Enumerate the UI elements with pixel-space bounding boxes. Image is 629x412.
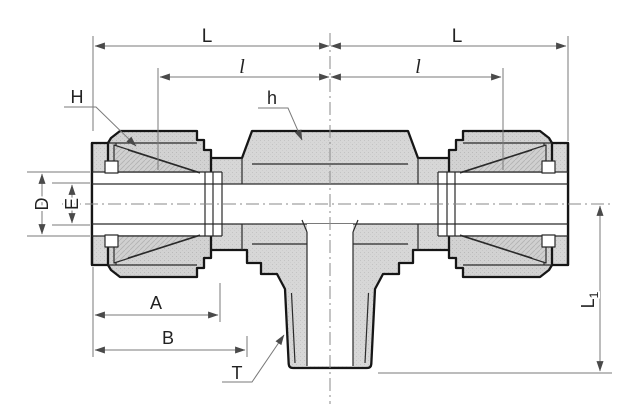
dim-label-l-left: l (239, 56, 245, 78)
drawing-canvas: L L l l D E A B L1 H h T (0, 0, 629, 412)
dim-label-B: B (162, 328, 174, 348)
dim-label-L1-main: L (578, 298, 598, 308)
dim-label-L-left: L (202, 26, 213, 47)
dim-label-E: E (62, 198, 82, 210)
dim-label-H: H (71, 87, 84, 107)
dim-label-T: T (232, 363, 243, 383)
fitting-technical-drawing: L L l l D E A B L1 H h T (0, 0, 629, 412)
dim-label-A: A (150, 293, 162, 313)
dim-label-h: h (267, 88, 277, 108)
dim-label-L1-sub: 1 (587, 291, 601, 298)
dim-label-l-right: l (415, 56, 421, 78)
dim-label-L-right: L (452, 26, 463, 47)
dim-label-D: D (32, 198, 52, 211)
